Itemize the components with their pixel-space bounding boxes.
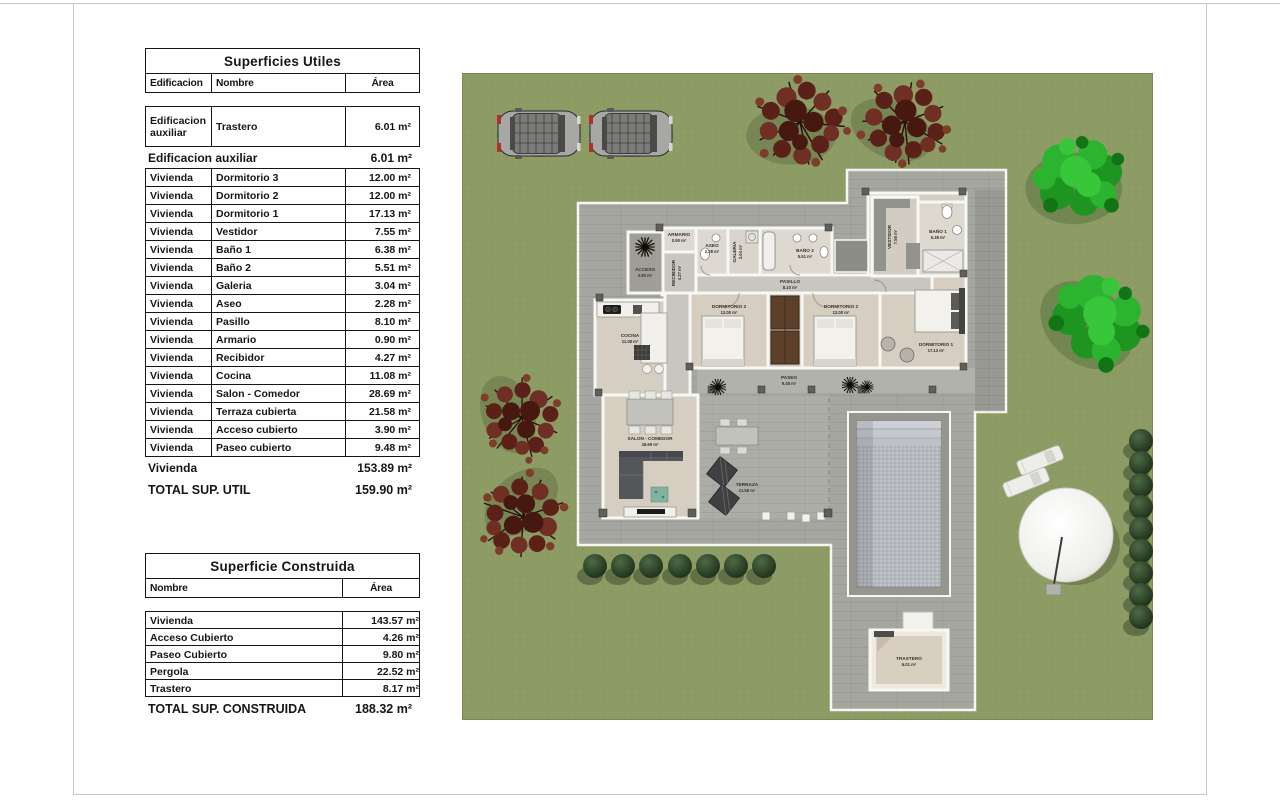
svg-text:12.00 m²: 12.00 m² — [721, 310, 738, 315]
table-row: Vivienda Galeria 3.04 m² — [146, 276, 419, 294]
cell-edificacion: Vivienda — [146, 313, 212, 330]
cell-nombre: Galeria — [212, 277, 346, 294]
table-header: Nombre Área — [145, 579, 420, 598]
svg-text:6.01 m²: 6.01 m² — [902, 662, 917, 667]
cell-edificacion: Vivienda — [146, 259, 212, 276]
svg-text:2.28 m²: 2.28 m² — [705, 249, 720, 254]
table-row: Vivienda Dormitorio 3 12.00 m² — [146, 169, 419, 186]
built-surfaces-table: Superficie Construida Nombre Área Vivien… — [145, 553, 420, 720]
room-label-salon: SALON - COMEDOR — [627, 436, 673, 441]
room-label-trastero: TRASTERO — [896, 656, 922, 661]
cell-area: 28.69 m² — [346, 385, 419, 402]
room-label-acceso: ACCESO — [635, 267, 655, 272]
room-label-recibidor: RECIBIDOR — [671, 259, 676, 286]
cell-area: 12.00 m² — [346, 169, 419, 186]
cell-edificacion: Vivienda — [146, 367, 212, 384]
cell-nombre: Acceso Cubierto — [146, 629, 343, 645]
cell-area: 3.04 m² — [346, 277, 419, 294]
cell-edificacion: Vivienda — [146, 421, 212, 438]
table-row: Vivienda Armario 0.90 m² — [146, 330, 419, 348]
cell-nombre: Trastero — [146, 680, 343, 696]
cell-edificacion: Vivienda — [146, 295, 212, 312]
useful-total-row: TOTAL SUP. UTIL 159.90 m² — [145, 478, 420, 501]
col-header-nombre: Nombre — [212, 74, 346, 92]
subtotal-value: 6.01 m² — [371, 151, 412, 165]
room-label-cocina: COCINA — [621, 333, 640, 338]
col-header-area: Área — [343, 579, 419, 597]
cell-edificacion: Vivienda — [146, 439, 212, 456]
cell-edificacion: Vivienda — [146, 277, 212, 294]
table-row: Vivienda Aseo 2.28 m² — [146, 294, 419, 312]
built-rows-block: Vivienda 143.57 m² Acceso Cubierto 4.26 … — [145, 611, 420, 697]
cell-nombre: Baño 2 — [212, 259, 346, 276]
total-value: 159.90 m² — [355, 483, 412, 497]
room-label-bano2: BAÑO 2 — [796, 247, 814, 253]
table-gap — [145, 598, 420, 611]
cell-area: 0.90 m² — [346, 331, 419, 348]
svg-text:0.90 m²: 0.90 m² — [672, 238, 687, 243]
svg-text:8.10 m²: 8.10 m² — [783, 285, 798, 290]
col-header-edificacion: Edificacion — [146, 74, 212, 92]
table-gap — [145, 93, 420, 106]
site-plan: ACCESO 3.90 m² RECIBIDOR 4.27 m² ARMARIO… — [462, 73, 1153, 720]
total-label: TOTAL SUP. CONSTRUIDA — [148, 702, 306, 716]
col-header-nombre: Nombre — [146, 579, 343, 597]
cell-area: 8.17 m² — [343, 680, 419, 696]
subtotal-value: 153.89 m² — [357, 461, 412, 475]
room-label-dormitorio2: DORMITORIO 2 — [824, 304, 859, 309]
svg-text:3.04 m²: 3.04 m² — [738, 244, 743, 259]
cell-nombre: Paseo Cubierto — [146, 646, 343, 662]
room-label-armario: ARMARIO — [668, 232, 691, 237]
page-border-left — [73, 3, 74, 795]
table-row: Vivienda Vestidor 7.55 m² — [146, 222, 419, 240]
col-header-area: Área — [346, 74, 419, 92]
cell-nombre: Dormitorio 3 — [212, 169, 346, 186]
cell-nombre: Recibidor — [212, 349, 346, 366]
cell-edificacion: Vivienda — [146, 331, 212, 348]
cell-edificacion: Vivienda — [146, 223, 212, 240]
cell-edificacion: Vivienda — [146, 205, 212, 222]
cell-nombre: Aseo — [212, 295, 346, 312]
table-row: Vivienda Salon - Comedor 28.69 m² — [146, 384, 419, 402]
cell-area: 7.55 m² — [346, 223, 419, 240]
cell-area: 12.00 m² — [346, 187, 419, 204]
table-row: Vivienda Cocina 11.08 m² — [146, 366, 419, 384]
cell-area: 6.01 m² — [346, 107, 419, 146]
document-page: Superficies Utiles Edificacion Nombre Ár… — [0, 0, 1280, 800]
table-row: Edificacion auxiliar Trastero 6.01 m² — [146, 107, 419, 146]
cell-area: 9.80 m² — [343, 646, 419, 662]
cell-area: 4.26 m² — [343, 629, 419, 645]
cell-nombre: Salon - Comedor — [212, 385, 346, 402]
cell-nombre: Pasillo — [212, 313, 346, 330]
table-row: Vivienda Dormitorio 2 12.00 m² — [146, 186, 419, 204]
cell-nombre: Trastero — [212, 107, 346, 146]
total-label: TOTAL SUP. UTIL — [148, 483, 251, 497]
cell-edificacion: Vivienda — [146, 241, 212, 258]
cell-nombre: Baño 1 — [212, 241, 346, 258]
cell-area: 21.58 m² — [346, 403, 419, 420]
subtotal-label: Edificacion auxiliar — [148, 151, 257, 165]
room-label-bano1: BAÑO 1 — [929, 228, 947, 234]
table-row: Vivienda Pasillo 8.10 m² — [146, 312, 419, 330]
table-row: Trastero 8.17 m² — [146, 679, 419, 696]
cell-nombre: Paseo cubierto — [212, 439, 346, 456]
cell-nombre: Dormitorio 2 — [212, 187, 346, 204]
subtotal-label: Vivienda — [148, 461, 197, 475]
cell-nombre: Pergola — [146, 663, 343, 679]
cell-area: 5.51 m² — [346, 259, 419, 276]
page-border-top — [0, 3, 1280, 4]
exterior-closet — [835, 240, 868, 272]
cell-nombre: Armario — [212, 331, 346, 348]
table-row: Pergola 22.52 m² — [146, 662, 419, 679]
cell-area: 2.28 m² — [346, 295, 419, 312]
vivienda-rows-block: Vivienda Dormitorio 3 12.00 m² Vivienda … — [145, 168, 420, 457]
table-row: Vivienda Terraza cubierta 21.58 m² — [146, 402, 419, 420]
room-label-aseo: ASEO — [705, 243, 719, 248]
table-row: Vivienda Dormitorio 1 17.13 m² — [146, 204, 419, 222]
room-label-paseo: PASEO — [781, 375, 797, 380]
useful-surfaces-table: Superficies Utiles Edificacion Nombre Ár… — [145, 48, 420, 501]
cell-nombre: Terraza cubierta — [212, 403, 346, 420]
table-row: Vivienda Baño 2 5.51 m² — [146, 258, 419, 276]
room-label-dormitorio1: DORMITORIO 1 — [919, 342, 954, 347]
total-value: 188.32 m² — [355, 702, 412, 716]
cell-area: 22.52 m² — [343, 663, 419, 679]
svg-text:17.13 m²: 17.13 m² — [928, 348, 945, 353]
page-border-right — [1206, 3, 1207, 795]
cell-nombre: Vestidor — [212, 223, 346, 240]
table-row: Vivienda Paseo cubierto 9.48 m² — [146, 438, 419, 456]
swimming-pool — [848, 412, 950, 596]
svg-text:11.08 m²: 11.08 m² — [622, 339, 639, 344]
svg-text:12.00 m²: 12.00 m² — [833, 310, 850, 315]
cell-nombre: Acceso cubierto — [212, 421, 346, 438]
svg-text:5.51 m²: 5.51 m² — [798, 254, 813, 259]
page-border-bottom — [73, 794, 1207, 795]
table-header: Edificacion Nombre Área — [145, 74, 420, 93]
table-title: Superficie Construida — [145, 553, 420, 579]
aux-rows-block: Edificacion auxiliar Trastero 6.01 m² — [145, 106, 420, 147]
table-row: Vivienda 143.57 m² — [146, 612, 419, 628]
table-row: Vivienda Baño 1 6.38 m² — [146, 240, 419, 258]
room-label-dormitorio3: DORMITORIO 3 — [712, 304, 747, 309]
cell-nombre: Dormitorio 1 — [212, 205, 346, 222]
cell-edificacion: Edificacion auxiliar — [146, 107, 212, 146]
cell-edificacion: Vivienda — [146, 403, 212, 420]
table-row: Vivienda Acceso cubierto 3.90 m² — [146, 420, 419, 438]
cell-area: 143.57 m² — [343, 612, 419, 628]
svg-text:3.90 m²: 3.90 m² — [638, 273, 653, 278]
cell-area: 8.10 m² — [346, 313, 419, 330]
table-title: Superficies Utiles — [145, 48, 420, 74]
room-label-terraza: TERRAZA — [736, 482, 759, 487]
vivienda-subtotal-row: Vivienda 153.89 m² — [145, 457, 420, 478]
room-label-galeria: GALERIA — [732, 241, 737, 263]
svg-text:7.55 m²: 7.55 m² — [893, 229, 898, 244]
table-row: Vivienda Recibidor 4.27 m² — [146, 348, 419, 366]
cell-area: 9.48 m² — [346, 439, 419, 456]
cell-area: 6.38 m² — [346, 241, 419, 258]
aux-subtotal-row: Edificacion auxiliar 6.01 m² — [145, 147, 420, 168]
cell-area: 4.27 m² — [346, 349, 419, 366]
table-row: Acceso Cubierto 4.26 m² — [146, 628, 419, 645]
svg-text:6.38 m²: 6.38 m² — [931, 235, 946, 240]
cell-area: 3.90 m² — [346, 421, 419, 438]
room-label-vestidor: VESTIDOR — [887, 224, 892, 249]
svg-text:4.27 m²: 4.27 m² — [677, 265, 682, 280]
svg-text:9.48 m²: 9.48 m² — [782, 381, 797, 386]
cell-area: 17.13 m² — [346, 205, 419, 222]
cell-edificacion: Vivienda — [146, 169, 212, 186]
built-total-row: TOTAL SUP. CONSTRUIDA 188.32 m² — [145, 697, 420, 720]
svg-text:21.58 m²: 21.58 m² — [739, 488, 756, 493]
room-label-pasillo: PASILLO — [780, 279, 800, 284]
cell-area: 11.08 m² — [346, 367, 419, 384]
cell-nombre: Vivienda — [146, 612, 343, 628]
cell-nombre: Cocina — [212, 367, 346, 384]
svg-text:28.69 m²: 28.69 m² — [642, 442, 659, 447]
table-row: Paseo Cubierto 9.80 m² — [146, 645, 419, 662]
cell-edificacion: Vivienda — [146, 349, 212, 366]
cell-edificacion: Vivienda — [146, 187, 212, 204]
cell-edificacion: Vivienda — [146, 385, 212, 402]
